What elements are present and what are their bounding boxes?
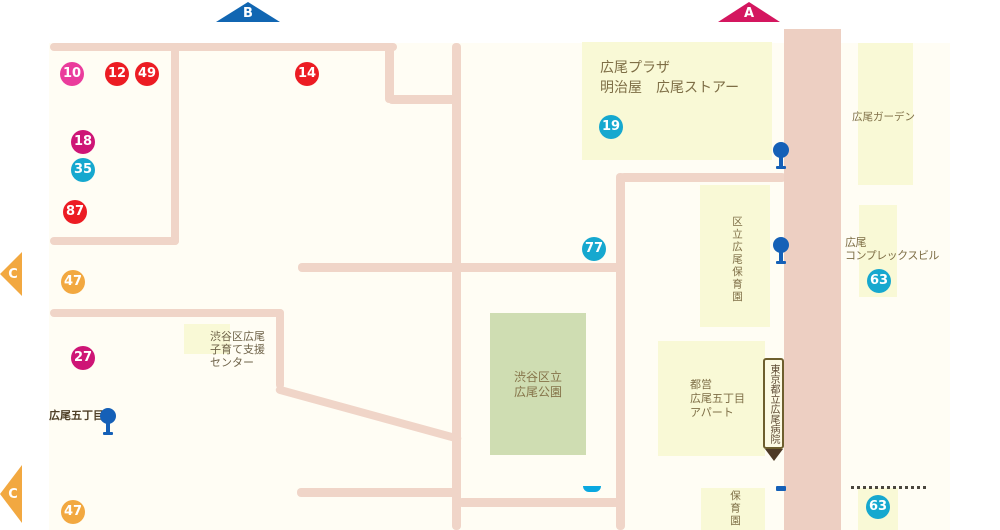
direction-a-label: A	[718, 6, 780, 21]
label-hiroo-park: 渋谷区立広尾公園	[494, 370, 582, 400]
direction-c-label: C	[4, 487, 22, 502]
label-hoikuen-bottom: 保育園	[729, 490, 741, 528]
stop-marker-35[interactable]: 35	[71, 158, 95, 182]
label-kuritsu-hoikuen: 区立広尾保育園	[731, 216, 743, 304]
signpost-text: 東京都立広尾病院	[766, 364, 781, 444]
road-right-vertical	[616, 173, 625, 530]
bus-route-map: 広尾プラザ明治屋 広尾ストアー 広尾ガーデン 区立広尾保育園 広尾コンプレックス…	[0, 0, 1000, 530]
label-toei-apart: 都営広尾五丁目アパート	[690, 378, 745, 420]
road-lower-left-horizontal	[50, 309, 284, 317]
label-hiroo-plaza: 広尾プラザ明治屋 広尾ストアー	[600, 58, 739, 98]
stop-marker-63-lower[interactable]: 63	[866, 495, 890, 519]
bus-stop-pin-partial-icon	[776, 486, 786, 491]
stop-marker-14[interactable]: 14	[295, 62, 319, 86]
road-jog-horizontal	[388, 95, 460, 104]
direction-b-arrow[interactable]: B	[216, 2, 280, 22]
bus-stop-pin-icon	[100, 408, 116, 436]
label-hiroo-5chome: 広尾五丁目	[49, 409, 104, 422]
bus-stop-pin-icon	[773, 237, 789, 265]
stop-marker-27[interactable]: 27	[71, 346, 95, 370]
stop-marker-18[interactable]: 18	[71, 130, 95, 154]
road-center-vertical	[452, 43, 461, 530]
stop-marker-47-upper[interactable]: 47	[61, 270, 85, 294]
label-hiroo-complex: 広尾コンプレックスビル	[845, 236, 939, 262]
stop-marker-47-lower[interactable]: 47	[61, 500, 85, 524]
road-top	[50, 43, 397, 51]
stop-marker-19[interactable]: 19	[599, 115, 623, 139]
road-upper-right-horizontal	[620, 173, 786, 182]
direction-a-arrow[interactable]: A	[718, 2, 780, 22]
road-left-vertical	[171, 43, 179, 245]
signpost-hiroo-hospital: 東京都立広尾病院	[763, 358, 784, 449]
stop-marker-10[interactable]: 10	[60, 62, 84, 86]
clipped-text-fragment	[851, 486, 929, 489]
road-lower-left-stub	[276, 309, 284, 389]
direction-c-arrow-lower[interactable]: C	[0, 465, 22, 523]
road-bottom-left-horizontal	[297, 488, 458, 497]
label-kosodate-center: 渋谷区広尾子育て支援センター	[210, 330, 265, 369]
label-hiroo-garden: 広尾ガーデン	[852, 111, 915, 124]
direction-b-label: B	[216, 6, 280, 21]
bus-stop-pin-icon	[773, 142, 789, 170]
main-road	[784, 29, 841, 530]
stop-marker-12[interactable]: 12	[105, 62, 129, 86]
signpost-pointer-icon	[765, 449, 783, 461]
stop-marker-49[interactable]: 49	[135, 62, 159, 86]
direction-c-label: C	[4, 267, 22, 282]
road-middle-horizontal	[298, 263, 622, 272]
road-jog-vertical	[385, 43, 394, 103]
stop-marker-63-upper[interactable]: 63	[867, 269, 891, 293]
road-left-block-bottom	[50, 237, 179, 245]
direction-c-arrow-upper[interactable]: C	[0, 252, 22, 296]
stop-marker-77[interactable]: 77	[582, 237, 606, 261]
stop-marker-87[interactable]: 87	[63, 200, 87, 224]
road-bottom-center-horizontal	[458, 498, 620, 507]
